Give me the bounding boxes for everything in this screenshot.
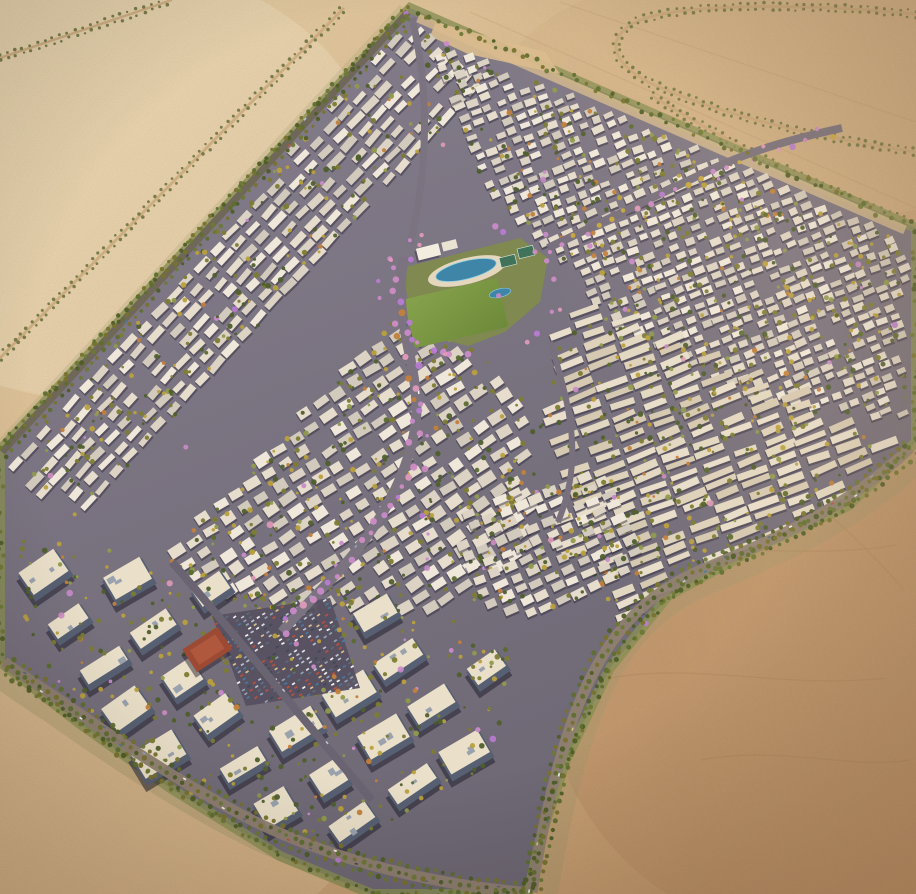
vignette [0, 0, 916, 894]
aerial-render-stage [0, 0, 916, 894]
aerial-masterplan-render [0, 0, 916, 894]
lighting-overlay [0, 0, 916, 894]
